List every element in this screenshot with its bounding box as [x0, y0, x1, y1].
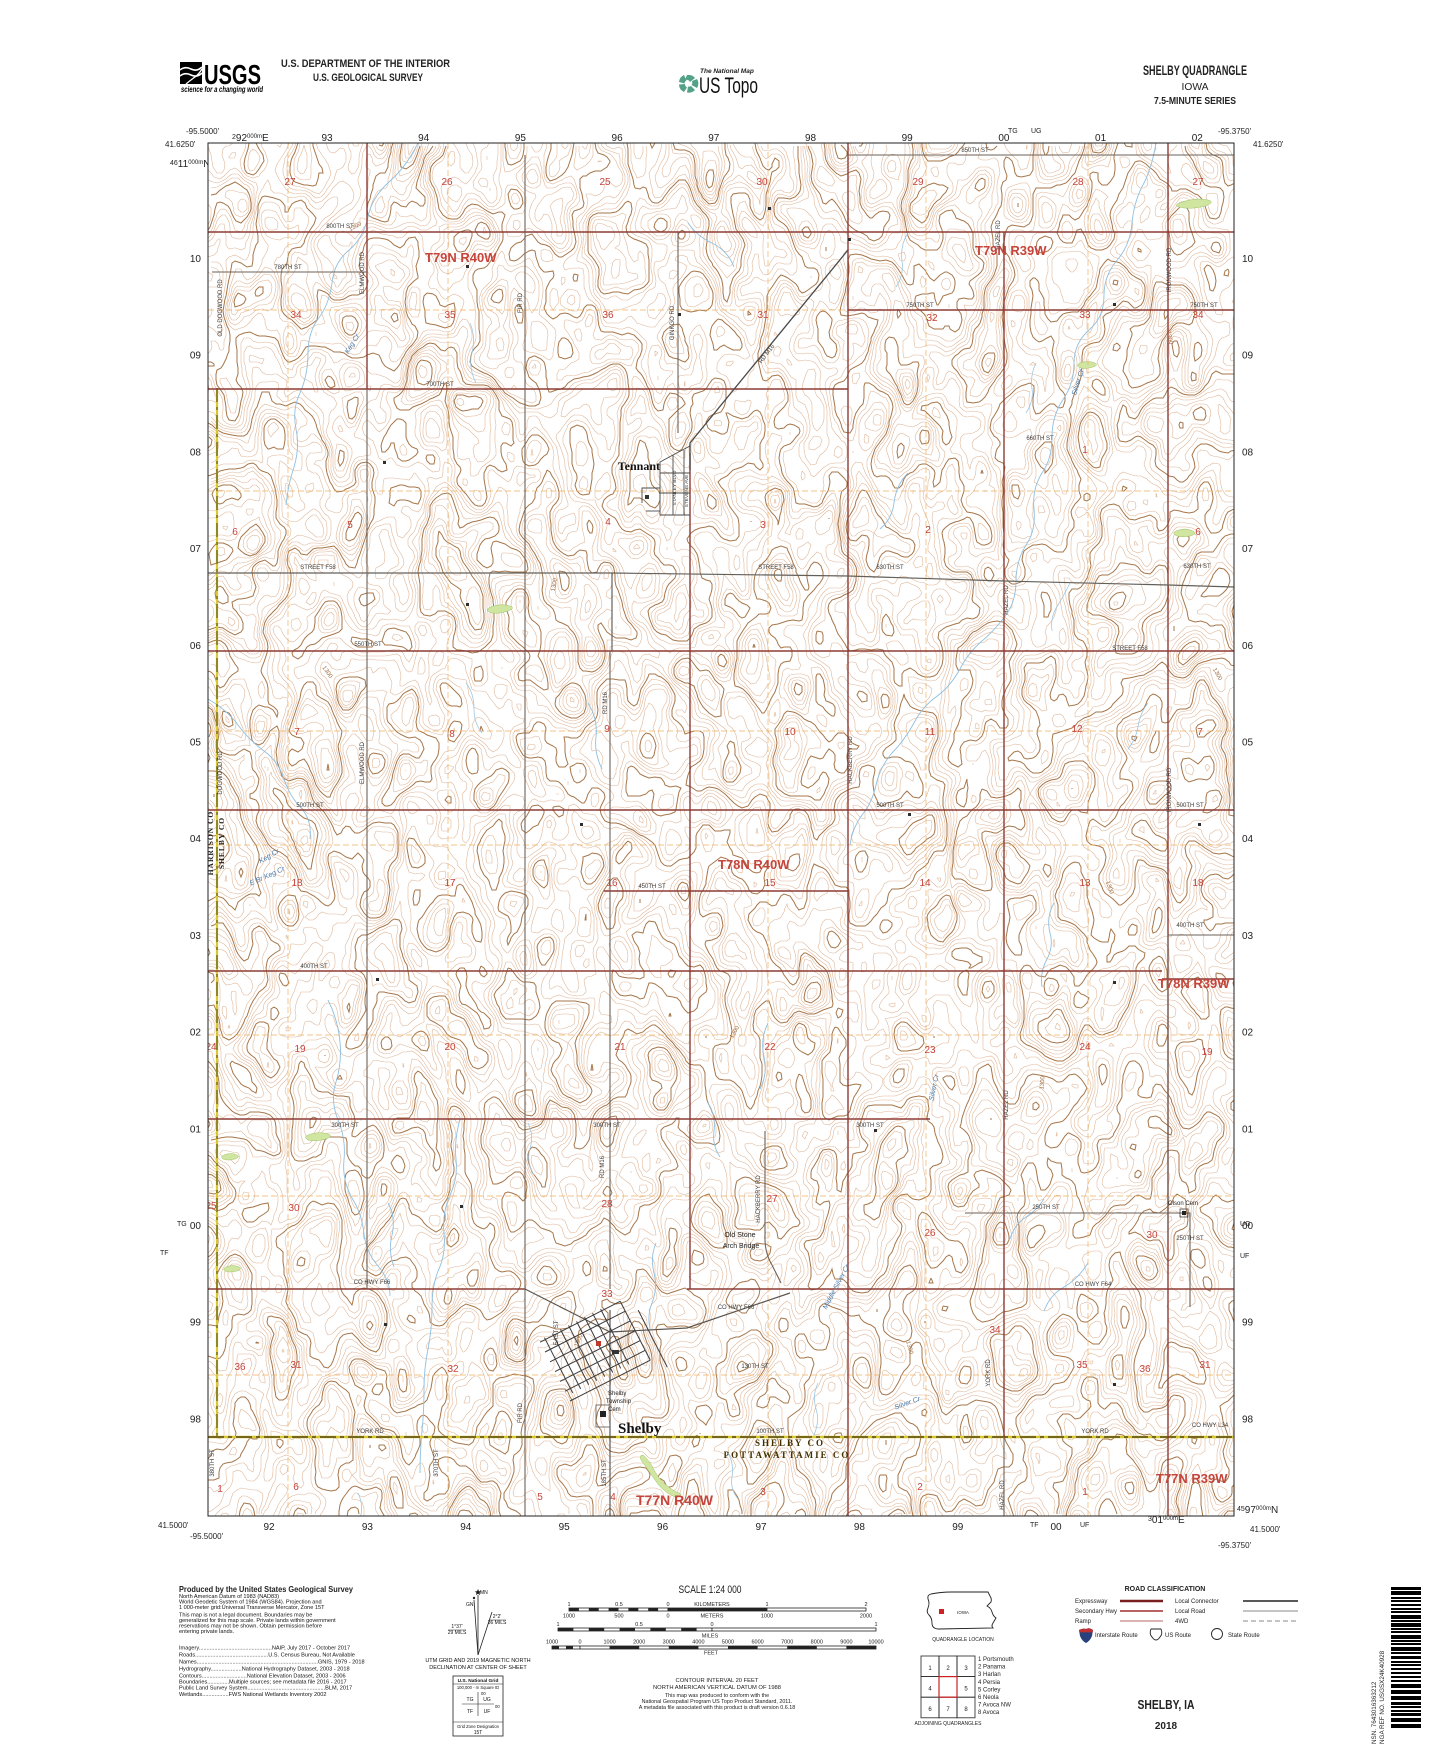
- svg-text:34: 34: [290, 310, 302, 321]
- svg-text:-95.3750': -95.3750': [1218, 1541, 1252, 1550]
- svg-text:400TH ST: 400TH ST: [300, 964, 328, 970]
- svg-text:CO HWY L34: CO HWY L34: [1192, 1423, 1229, 1429]
- svg-text:DOGWOOD RD: DOGWOOD RD: [218, 751, 224, 795]
- svg-text:1000: 1000: [761, 1614, 773, 1620]
- svg-text:NORTH AMERICAN VERTICAL DATUM: NORTH AMERICAN VERTICAL DATUM OF 1988: [653, 1685, 781, 1691]
- svg-text:33: 33: [601, 1289, 613, 1300]
- svg-text:98: 98: [805, 133, 817, 144]
- svg-text:1000: 1000: [603, 1640, 615, 1646]
- svg-text:01: 01: [1242, 1124, 1254, 1135]
- svg-text:ROAD CLASSIFICATION: ROAD CLASSIFICATION: [1125, 1586, 1206, 1593]
- svg-text:IOWA: IOWA: [1182, 82, 1209, 93]
- svg-text:100TH ST: 100TH ST: [756, 1429, 784, 1435]
- svg-text:T79N R40W: T79N R40W: [425, 250, 497, 265]
- svg-text:1: 1: [567, 1602, 570, 1608]
- svg-text:380TH ST: 380TH ST: [210, 1449, 216, 1477]
- svg-text:HACKBERRY RD: HACKBERRY RD: [848, 736, 854, 784]
- svg-text:EAST ST: EAST ST: [554, 1320, 560, 1345]
- svg-text:0: 0: [666, 1602, 669, 1608]
- svg-text:01: 01: [1095, 133, 1107, 144]
- svg-text:02: 02: [1192, 133, 1204, 144]
- svg-text:TF: TF: [467, 1709, 473, 1715]
- svg-text:8: 8: [449, 729, 455, 740]
- svg-text:5: 5: [964, 1687, 968, 1693]
- svg-text:Tennant: Tennant: [618, 459, 660, 473]
- svg-text:7: 7: [1197, 727, 1203, 738]
- svg-text:5: 5: [347, 520, 353, 531]
- svg-text:4597000mN: 4597000mN: [1237, 1505, 1278, 1516]
- svg-text:36: 36: [602, 310, 614, 321]
- svg-text:02: 02: [190, 1028, 202, 1039]
- svg-text:Cem: Cem: [608, 1407, 621, 1413]
- svg-text:RD M16: RD M16: [600, 1155, 606, 1178]
- svg-text:07: 07: [190, 544, 202, 555]
- svg-text:U.S. National Grid: U.S. National Grid: [458, 1678, 499, 1684]
- svg-text:250TH ST: 250TH ST: [1176, 1236, 1204, 1242]
- svg-text:A metadata file associated wit: A metadata file associated with this pro…: [639, 1705, 795, 1711]
- svg-text:FEET: FEET: [704, 1651, 719, 1657]
- svg-text:30: 30: [288, 1203, 300, 1214]
- svg-text:93: 93: [362, 1522, 374, 1533]
- svg-text:Imagery.......................: Imagery.................................…: [179, 1646, 350, 1652]
- svg-text:4611000mN: 4611000mN: [170, 159, 210, 170]
- svg-text:1: 1: [874, 1622, 877, 1628]
- svg-text:750TH ST: 750TH ST: [906, 303, 934, 309]
- svg-text:301000mE: 301000mE: [1148, 1515, 1185, 1526]
- svg-text:GN: GN: [466, 1602, 474, 1608]
- svg-text:850TH ST: 850TH ST: [961, 148, 989, 154]
- svg-text:31: 31: [1199, 1360, 1211, 1371]
- svg-text:6 Neola: 6 Neola: [978, 1695, 999, 1701]
- svg-text:03: 03: [1242, 931, 1254, 942]
- svg-text:T77N R39W: T77N R39W: [1156, 1471, 1228, 1486]
- svg-text:23: 23: [924, 1045, 936, 1056]
- svg-text:-95.3750': -95.3750': [1218, 127, 1252, 136]
- svg-text:700TH ST: 700TH ST: [426, 382, 454, 388]
- svg-text:33: 33: [1079, 310, 1091, 321]
- svg-text:4WD: 4WD: [1175, 1619, 1189, 1625]
- svg-text:Secondary Hwy: Secondary Hwy: [1075, 1609, 1117, 1615]
- svg-text:1: 1: [928, 1666, 932, 1672]
- svg-text:300TH ST: 300TH ST: [331, 1123, 359, 1129]
- svg-text:04: 04: [1242, 834, 1254, 845]
- svg-text:entering private lands.: entering private lands.: [179, 1629, 234, 1635]
- svg-text:93: 93: [321, 133, 333, 144]
- svg-text:7: 7: [946, 1707, 950, 1713]
- svg-text:SHELBY CO: SHELBY CO: [755, 1438, 825, 1448]
- svg-text:500TH ST: 500TH ST: [296, 803, 324, 809]
- svg-text:34: 34: [989, 1325, 1001, 1336]
- svg-text:2: 2: [864, 1602, 867, 1608]
- svg-text:Produced by the United States: Produced by the United States Geological…: [179, 1584, 353, 1594]
- svg-text:15T: 15T: [474, 1730, 483, 1736]
- svg-text:41.6250': 41.6250': [1253, 140, 1284, 149]
- svg-text:03: 03: [190, 931, 202, 942]
- svg-text:1000: 1000: [546, 1640, 558, 1646]
- svg-text:95: 95: [515, 133, 527, 144]
- svg-text:Roads.........................: Roads...................................…: [179, 1653, 355, 1659]
- svg-text:26: 26: [924, 1228, 936, 1239]
- svg-text:Public Land Survey Sy: Public Land Survey System...............…: [179, 1686, 352, 1692]
- svg-text:T78N R40W: T78N R40W: [718, 857, 790, 872]
- svg-text:Names.........................: Names...................................…: [179, 1660, 365, 1666]
- svg-text:T77N R40W: T77N R40W: [636, 1492, 714, 1508]
- svg-text:Expressway: Expressway: [1075, 1599, 1107, 1605]
- svg-text:450TH ST: 450TH ST: [638, 884, 666, 890]
- svg-text:0.5: 0.5: [635, 1622, 643, 1628]
- svg-text:UF: UF: [1080, 1522, 1089, 1529]
- svg-text:7 Avoca NW: 7 Avoca NW: [978, 1703, 1011, 1709]
- svg-text:92: 92: [263, 1522, 275, 1533]
- svg-text:Arch Bridge: Arch Bridge: [723, 1243, 760, 1250]
- svg-text:3 Harlan: 3 Harlan: [978, 1672, 1001, 1678]
- svg-text:UG: UG: [483, 1697, 491, 1703]
- svg-text:6: 6: [232, 527, 238, 538]
- svg-text:99: 99: [190, 1318, 202, 1329]
- svg-text:5000: 5000: [722, 1640, 734, 1646]
- svg-text:14: 14: [919, 878, 931, 889]
- svg-text:Old Stone: Old Stone: [724, 1232, 755, 1239]
- svg-text:FIR RD: FIR RD: [518, 1402, 524, 1423]
- svg-text:Hydrography...................: Hydrography....................National …: [179, 1667, 350, 1673]
- svg-text:99: 99: [952, 1522, 964, 1533]
- svg-text:31: 31: [290, 1360, 302, 1371]
- svg-text:250TH ST: 250TH ST: [1032, 1205, 1060, 1211]
- svg-text:STANLEY BLVD: STANLEY BLVD: [672, 470, 678, 505]
- svg-text:T78N R39W: T78N R39W: [1158, 976, 1230, 991]
- svg-text:0: 0: [578, 1640, 581, 1646]
- svg-text:00: 00: [481, 1691, 486, 1696]
- svg-text:2000: 2000: [860, 1614, 872, 1620]
- svg-text:13: 13: [1079, 878, 1091, 889]
- svg-text:32: 32: [926, 313, 938, 324]
- svg-text:630TH ST: 630TH ST: [1183, 564, 1211, 570]
- svg-text:2: 2: [946, 1666, 950, 1672]
- svg-text:8: 8: [964, 1707, 968, 1713]
- svg-text:34: 34: [1192, 310, 1204, 321]
- svg-text:98: 98: [190, 1414, 202, 1425]
- svg-text:U.S. GEOLOGICAL SURVEY: U.S. GEOLOGICAL SURVEY: [313, 72, 423, 84]
- svg-text:UG: UG: [1240, 1221, 1251, 1228]
- svg-text:3: 3: [760, 520, 766, 531]
- svg-text:HAZEL RD: HAZEL RD: [1004, 1090, 1010, 1120]
- svg-text:500: 500: [614, 1614, 623, 1620]
- svg-text:ELMWOOD RD: ELMWOOD RD: [360, 741, 366, 784]
- svg-text:35: 35: [1076, 1360, 1088, 1371]
- svg-text:8000: 8000: [811, 1640, 823, 1646]
- svg-text:SHELBY CO: SHELBY CO: [217, 817, 226, 869]
- svg-text:500TH ST: 500TH ST: [1176, 803, 1204, 809]
- svg-text:YORK RD: YORK RD: [356, 1429, 384, 1435]
- svg-text:4000: 4000: [692, 1640, 704, 1646]
- svg-text:NSN. 7643016363212: NSN. 7643016363212: [1371, 1681, 1378, 1744]
- svg-text:Interstate Route: Interstate Route: [1095, 1633, 1138, 1639]
- svg-text:97: 97: [708, 133, 720, 144]
- svg-text:780TH ST: 780TH ST: [274, 265, 302, 271]
- svg-text:96: 96: [612, 133, 624, 144]
- svg-text:FIR RD: FIR RD: [518, 292, 524, 313]
- svg-text:36: 36: [1139, 1364, 1151, 1375]
- svg-text:3: 3: [964, 1666, 968, 1672]
- svg-text:06: 06: [190, 641, 202, 652]
- svg-text:08: 08: [190, 447, 202, 458]
- svg-text:24: 24: [205, 1042, 217, 1053]
- svg-text:15: 15: [764, 878, 776, 889]
- svg-text:0.5: 0.5: [615, 1602, 623, 1608]
- svg-text:QUADRANGLE LOCATION: QUADRANGLE LOCATION: [932, 1637, 994, 1643]
- svg-text:OLD DOGWOOD RD: OLD DOGWOOD RD: [218, 279, 224, 337]
- svg-text:Grid Zone Designation: Grid Zone Designation: [457, 1724, 500, 1729]
- svg-text:-95.5000': -95.5000': [186, 127, 220, 136]
- svg-text:UG: UG: [1031, 128, 1042, 135]
- svg-text:21: 21: [614, 1042, 626, 1053]
- svg-text:6: 6: [293, 1482, 299, 1493]
- svg-text:17: 17: [444, 878, 456, 889]
- svg-text:CO HWY F66: CO HWY F66: [718, 1305, 755, 1311]
- svg-text:41.5000': 41.5000': [158, 1521, 189, 1530]
- svg-text:10: 10: [1242, 254, 1254, 265]
- svg-text:41.6250': 41.6250': [165, 140, 196, 149]
- svg-text:36: 36: [234, 1362, 246, 1373]
- svg-text:STEVENS AVE: STEVENS AVE: [684, 475, 690, 508]
- svg-text:01: 01: [190, 1124, 202, 1135]
- svg-text:30: 30: [1146, 1230, 1158, 1241]
- svg-text:GINKGO RD: GINKGO RD: [670, 305, 676, 340]
- svg-text:300TH ST: 300TH ST: [856, 1123, 884, 1129]
- svg-text:7000: 7000: [781, 1640, 793, 1646]
- svg-text:DECLINATION AT CENTER OF SHEET: DECLINATION AT CENTER OF SHEET: [429, 1665, 527, 1671]
- svg-text:ELMWOOD RD: ELMWOOD RD: [360, 251, 366, 294]
- svg-text:130TH ST: 130TH ST: [741, 1364, 769, 1370]
- svg-text:CO HWY F64: CO HWY F64: [1075, 1282, 1112, 1288]
- svg-text:US Topo: US Topo: [699, 73, 758, 98]
- svg-text:98: 98: [854, 1522, 866, 1533]
- svg-text:NGA REF NO. USGSX24K40928: NGA REF NO. USGSX24K40928: [1379, 1650, 1386, 1744]
- svg-text:2: 2: [925, 525, 931, 536]
- svg-text:Local Connector: Local Connector: [1175, 1599, 1219, 1605]
- svg-text:HAZEL RD: HAZEL RD: [1000, 1480, 1006, 1510]
- svg-text:U.S. DEPARTMENT OF THE INTERIO: U.S. DEPARTMENT OF THE INTERIOR: [281, 58, 450, 70]
- svg-text:IRONWOOD RD: IRONWOOD RD: [1167, 767, 1173, 812]
- svg-text:99: 99: [902, 133, 914, 144]
- svg-text:500TH ST: 500TH ST: [876, 803, 904, 809]
- svg-text:27: 27: [1192, 177, 1204, 188]
- svg-text:98: 98: [1242, 1414, 1254, 1425]
- svg-text:1: 1: [217, 1484, 223, 1495]
- svg-text:1 000-meter grid:Universal Tra: 1 000-meter grid:Universal Transverse Me…: [179, 1605, 325, 1611]
- svg-text:SHELBY, IA: SHELBY, IA: [1138, 1698, 1195, 1712]
- svg-text:0: 0: [666, 1614, 669, 1620]
- svg-text:36 MILS: 36 MILS: [488, 1620, 507, 1626]
- svg-text:Local Road: Local Road: [1175, 1609, 1205, 1615]
- svg-text:27: 27: [766, 1194, 778, 1205]
- svg-text:US Route: US Route: [1165, 1633, 1192, 1639]
- svg-text:300TH ST: 300TH ST: [593, 1123, 621, 1129]
- svg-text:27: 27: [284, 177, 296, 188]
- svg-text:00: 00: [495, 1704, 500, 1709]
- svg-text:IRONWOOD RD: IRONWOOD RD: [1167, 247, 1173, 292]
- svg-text:UTM GRID AND 2019 MAGNETIC NOR: UTM GRID AND 2019 MAGNETIC NORTH: [425, 1658, 530, 1664]
- svg-text:STREET F58: STREET F58: [300, 565, 336, 571]
- svg-text:-95.5000': -95.5000': [190, 1532, 224, 1541]
- svg-text:32: 32: [447, 1364, 459, 1375]
- svg-text:660TH ST: 660TH ST: [1026, 436, 1054, 442]
- svg-text:science for a changing world: science for a changing world: [181, 85, 264, 94]
- svg-text:31: 31: [757, 310, 769, 321]
- svg-text:630TH ST: 630TH ST: [876, 565, 904, 571]
- svg-text:08: 08: [1242, 447, 1254, 458]
- svg-text:185TH ST: 185TH ST: [602, 1459, 608, 1487]
- svg-text:20: 20: [444, 1042, 456, 1053]
- svg-text:STREET F58: STREET F58: [1112, 646, 1148, 652]
- svg-text:30: 30: [756, 177, 768, 188]
- svg-text:02: 02: [1242, 1028, 1254, 1039]
- svg-text:22: 22: [764, 1042, 776, 1053]
- svg-text:26: 26: [441, 177, 453, 188]
- svg-text:550TH ST: 550TH ST: [354, 642, 382, 648]
- svg-text:05: 05: [190, 738, 202, 749]
- svg-text:Wetlands.................FWS: Wetlands.................FWS National We…: [179, 1692, 326, 1698]
- svg-text:POTTAWATTAMIE CO: POTTAWATTAMIE CO: [724, 1450, 851, 1460]
- svg-text:YORK RD: YORK RD: [986, 1359, 992, 1387]
- svg-text:6: 6: [928, 1707, 932, 1713]
- svg-text:Olson Cem: Olson Cem: [1168, 1201, 1198, 1207]
- svg-text:100,000 - m Square ID: 100,000 - m Square ID: [457, 1685, 499, 1690]
- svg-text:5 Corley: 5 Corley: [978, 1687, 1000, 1693]
- svg-text:HARRISON CO: HARRISON CO: [206, 811, 215, 876]
- svg-text:TF: TF: [1030, 1522, 1039, 1529]
- svg-text:State Route: State Route: [1228, 1633, 1260, 1639]
- svg-text:12: 12: [1071, 724, 1083, 735]
- svg-text:19: 19: [1201, 1047, 1213, 1058]
- svg-text:UF: UF: [1240, 1253, 1249, 1260]
- svg-text:3000: 3000: [663, 1640, 675, 1646]
- svg-text:1 Portsmouth: 1 Portsmouth: [978, 1657, 1014, 1663]
- svg-text:KILOMETERS: KILOMETERS: [694, 1602, 730, 1608]
- svg-text:1: 1: [1082, 1487, 1088, 1498]
- svg-text:95: 95: [559, 1522, 571, 1533]
- svg-text:9: 9: [604, 724, 610, 735]
- svg-text:25: 25: [599, 177, 611, 188]
- svg-text:94: 94: [460, 1522, 472, 1533]
- svg-text:SHELBY QUADRANGLE: SHELBY QUADRANGLE: [1143, 62, 1247, 78]
- svg-text:TG: TG: [467, 1697, 474, 1703]
- svg-text:94: 94: [418, 133, 430, 144]
- svg-text:8 Avoca: 8 Avoca: [978, 1710, 1000, 1716]
- svg-text:97: 97: [755, 1522, 767, 1533]
- svg-text:HAZEL RD: HAZEL RD: [1004, 585, 1010, 615]
- svg-text:750TH ST: 750TH ST: [1190, 303, 1218, 309]
- svg-text:400TH ST: 400TH ST: [1176, 923, 1204, 929]
- svg-text:09: 09: [1242, 351, 1254, 362]
- svg-text:2: 2: [917, 1482, 923, 1493]
- svg-text:41.5000': 41.5000': [1250, 1525, 1281, 1534]
- svg-text:1: 1: [1082, 445, 1088, 456]
- svg-text:STREET F58: STREET F58: [758, 565, 794, 571]
- svg-text:28: 28: [601, 1199, 613, 1210]
- svg-text:0: 0: [710, 1622, 713, 1628]
- svg-text:1: 1: [556, 1622, 559, 1628]
- svg-text:3: 3: [760, 1487, 766, 1498]
- svg-text:10: 10: [190, 254, 202, 265]
- svg-text:18: 18: [291, 878, 303, 889]
- svg-text:04: 04: [190, 834, 202, 845]
- svg-text:RD M16: RD M16: [603, 691, 609, 714]
- svg-text:4: 4: [928, 1687, 932, 1693]
- svg-text:9000: 9000: [840, 1640, 852, 1646]
- svg-text:Shelby: Shelby: [618, 1421, 662, 1437]
- svg-text:7.5-MINUTE SERIES: 7.5-MINUTE SERIES: [1154, 95, 1236, 107]
- svg-text:29 MILS: 29 MILS: [448, 1630, 467, 1636]
- svg-text:Shelby: Shelby: [608, 1391, 626, 1397]
- svg-text:SCALE 1:24 000: SCALE 1:24 000: [679, 1584, 742, 1596]
- svg-text:99: 99: [1242, 1318, 1254, 1329]
- svg-text:2000: 2000: [633, 1640, 645, 1646]
- svg-text:2 Panama: 2 Panama: [978, 1665, 1006, 1671]
- svg-text:MN: MN: [480, 1590, 488, 1596]
- svg-text:4: 4: [605, 517, 611, 528]
- svg-text:HACKBERRY RD: HACKBERRY RD: [756, 1175, 762, 1223]
- svg-text:11: 11: [925, 727, 936, 738]
- svg-text:10: 10: [784, 727, 796, 738]
- svg-text:00: 00: [1050, 1522, 1062, 1533]
- svg-text:1000: 1000: [563, 1614, 575, 1620]
- svg-text:35: 35: [444, 310, 456, 321]
- svg-text:4 Persia: 4 Persia: [978, 1680, 1001, 1686]
- svg-text:24: 24: [1079, 1042, 1091, 1053]
- svg-text:TF: TF: [160, 1250, 169, 1257]
- svg-text:5: 5: [537, 1492, 543, 1503]
- svg-text:292000mE: 292000mE: [232, 133, 269, 144]
- svg-text:TG: TG: [177, 1221, 187, 1228]
- svg-text:4: 4: [610, 1492, 616, 1503]
- svg-text:T79N R39W: T79N R39W: [975, 243, 1047, 258]
- svg-text:1300: 1300: [1039, 1075, 1046, 1089]
- svg-text:370TH ST: 370TH ST: [434, 1449, 440, 1477]
- svg-text:YORK RD: YORK RD: [1081, 1429, 1109, 1435]
- svg-text:19: 19: [294, 1044, 306, 1055]
- svg-text:TG: TG: [1008, 128, 1018, 135]
- svg-text:96: 96: [657, 1522, 669, 1533]
- svg-text:Ramp: Ramp: [1075, 1619, 1092, 1625]
- svg-text:6: 6: [1195, 527, 1201, 538]
- svg-text:CONTOUR INTERVAL 20 FEET: CONTOUR INTERVAL 20 FEET: [676, 1678, 759, 1684]
- svg-text:7: 7: [294, 727, 300, 738]
- svg-text:UF: UF: [484, 1709, 491, 1715]
- svg-text:6000: 6000: [751, 1640, 763, 1646]
- svg-text:18: 18: [1192, 878, 1204, 889]
- svg-text:2018: 2018: [1155, 1721, 1178, 1732]
- svg-text:06: 06: [1242, 641, 1254, 652]
- svg-text:1: 1: [765, 1602, 768, 1608]
- svg-text:28: 28: [1072, 177, 1084, 188]
- svg-text:00: 00: [190, 1221, 202, 1232]
- svg-text:25: 25: [205, 1201, 217, 1212]
- svg-text:CO HWY F66: CO HWY F66: [354, 1280, 391, 1286]
- svg-text:METERS: METERS: [701, 1614, 724, 1620]
- svg-text:ADJOINING QUADRANGLES: ADJOINING QUADRANGLES: [915, 1721, 983, 1727]
- svg-text:16: 16: [606, 878, 618, 889]
- svg-text:10000: 10000: [868, 1640, 883, 1646]
- svg-text:29: 29: [912, 177, 924, 188]
- svg-text:HAZEL RD: HAZEL RD: [996, 220, 1002, 250]
- svg-text:IOWA: IOWA: [957, 1610, 969, 1615]
- svg-text:05: 05: [1242, 738, 1254, 749]
- svg-text:Township: Township: [606, 1399, 632, 1405]
- svg-text:09: 09: [190, 351, 202, 362]
- svg-text:07: 07: [1242, 544, 1254, 555]
